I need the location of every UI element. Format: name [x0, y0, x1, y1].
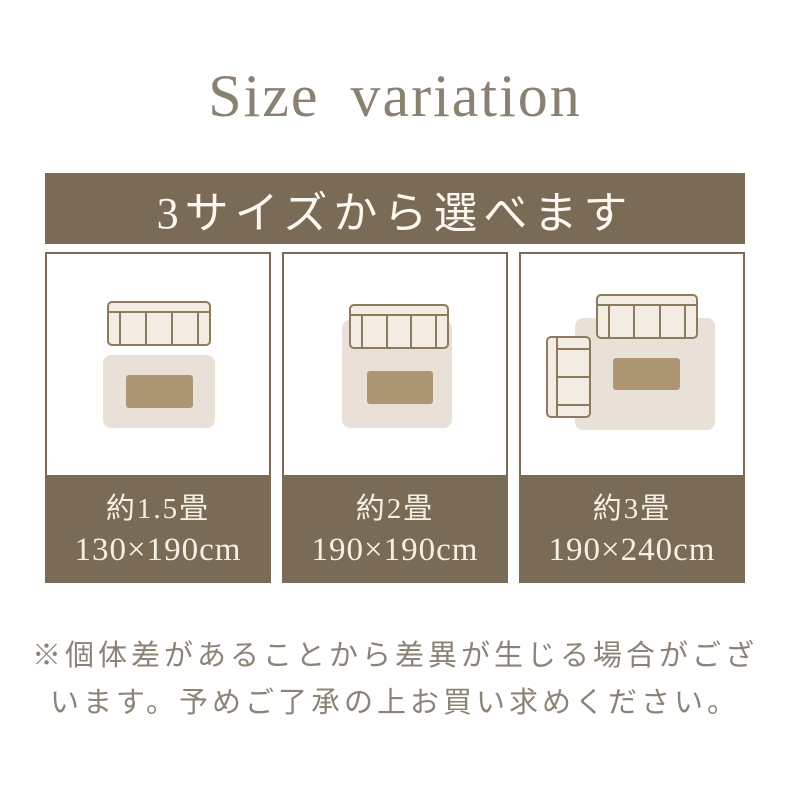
size-card-3jo: 約3畳 190×240cm: [519, 252, 745, 583]
sofa-3seat-icon: [108, 302, 210, 345]
size-cards: 約1.5畳 130×190cm: [45, 252, 745, 583]
disclaimer-line-1: ※個体差があることから差異が生じる場合がござ: [0, 633, 790, 680]
dimensions-label: 190×240cm: [549, 531, 716, 569]
room-layout-illustration: [47, 254, 269, 475]
size-card-1-5jo: 約1.5畳 130×190cm: [45, 252, 271, 583]
size-variation-page: Size variation 3サイズから選べます: [0, 0, 790, 790]
room-layout-illustration: [521, 254, 743, 475]
dimensions-label: 190×190cm: [312, 531, 479, 569]
table-shape: [367, 371, 433, 404]
page-title: Size variation: [0, 62, 790, 131]
size-card-2jo: 約2畳 190×190cm: [282, 252, 508, 583]
size-label: 約3畳: [593, 492, 672, 526]
size-label-block: 約3畳 190×240cm: [519, 477, 745, 583]
size-label: 約2畳: [356, 492, 435, 526]
sofa-3seat-icon: [350, 305, 448, 348]
size-banner-text: 3サイズから選べます: [157, 177, 634, 241]
room-figure: [519, 252, 745, 477]
room-layout-illustration: [284, 254, 506, 475]
disclaimer-line-2: います。予めご了承の上お買い求めください。: [0, 680, 790, 727]
size-label-block: 約1.5畳 130×190cm: [45, 477, 271, 583]
table-shape: [613, 358, 680, 390]
room-figure: [282, 252, 508, 477]
size-label: 約1.5畳: [106, 492, 210, 526]
disclaimer: ※個体差があることから差異が生じる場合がござ います。予めご了承の上お買い求めく…: [0, 633, 790, 727]
room-figure: [45, 252, 271, 477]
table-shape: [126, 375, 193, 408]
size-banner: 3サイズから選べます: [45, 173, 745, 244]
sofa-2seat-icon: [547, 337, 590, 417]
dimensions-label: 130×190cm: [75, 531, 242, 569]
size-label-block: 約2畳 190×190cm: [282, 477, 508, 583]
sofa-3seat-icon: [597, 295, 697, 338]
